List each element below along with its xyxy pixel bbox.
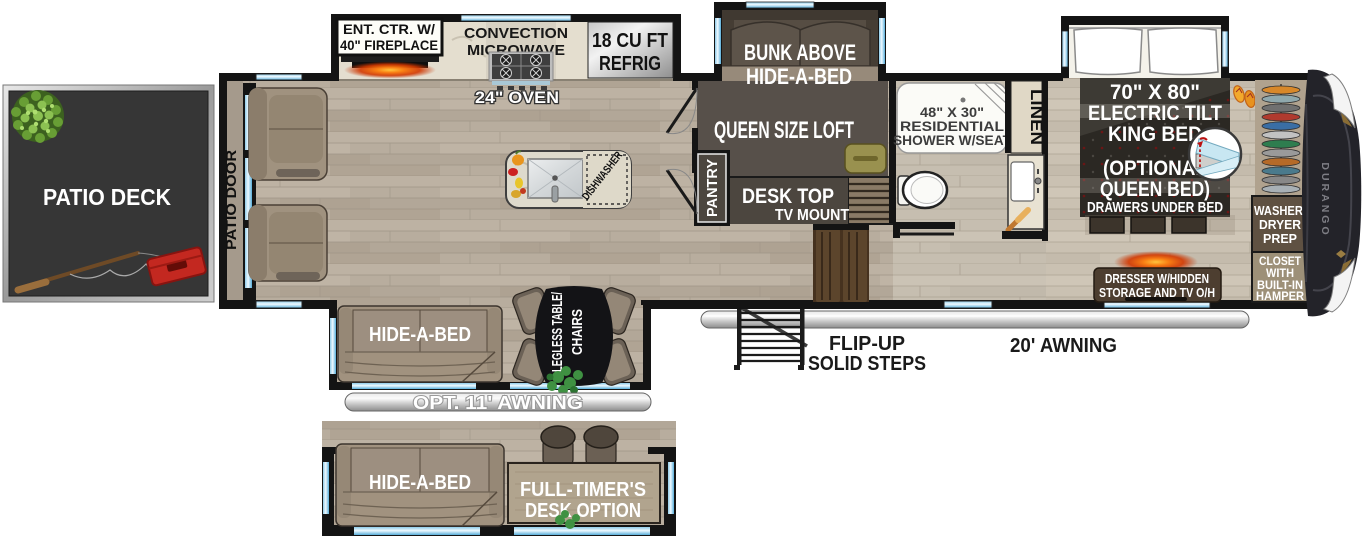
svg-text:FLIP-UP: FLIP-UP (829, 333, 905, 355)
svg-text:PANTRY: PANTRY (704, 159, 721, 217)
svg-text:CHAIRS: CHAIRS (569, 309, 586, 355)
svg-text:RESIDENTIAL: RESIDENTIAL (900, 119, 1004, 134)
svg-text:HIDE-A-BED: HIDE-A-BED (369, 324, 471, 346)
svg-text:DURANGO: DURANGO (1319, 162, 1331, 237)
svg-text:BUNK ABOVE: BUNK ABOVE (744, 40, 856, 65)
svg-text:KING BED: KING BED (1108, 123, 1202, 146)
svg-text:70" X 80": 70" X 80" (1110, 81, 1200, 104)
svg-text:HIDE-A-BED: HIDE-A-BED (369, 472, 471, 494)
svg-text:DRYER: DRYER (1259, 217, 1302, 232)
svg-text:QUEEN SIZE LOFT: QUEEN SIZE LOFT (714, 117, 854, 144)
svg-text:PATIO DOOR: PATIO DOOR (223, 150, 240, 250)
svg-text:OPT. 11' AWNING: OPT. 11' AWNING (413, 393, 583, 413)
svg-text:DRESSER W/HIDDEN: DRESSER W/HIDDEN (1105, 271, 1209, 286)
svg-text:SOLID STEPS: SOLID STEPS (808, 353, 926, 375)
svg-text:WITH: WITH (1266, 268, 1294, 280)
svg-text:WASHER/: WASHER/ (1254, 203, 1306, 218)
svg-text:HIDE-A-BED: HIDE-A-BED (746, 64, 852, 89)
svg-text:CLOSET: CLOSET (1259, 256, 1301, 268)
svg-text:PREP: PREP (1263, 231, 1297, 246)
svg-text:ENT. CTR. W/: ENT. CTR. W/ (343, 21, 435, 37)
svg-text:SHOWER W/SEAT: SHOWER W/SEAT (893, 133, 1012, 148)
svg-text:LEGLESS TABLE/: LEGLESS TABLE/ (549, 291, 566, 372)
svg-text:ELECTRIC TILT: ELECTRIC TILT (1088, 102, 1222, 125)
svg-text:18 CU FT: 18 CU FT (592, 30, 668, 52)
svg-text:CONVECTION: CONVECTION (464, 25, 568, 42)
svg-text:DESK OPTION: DESK OPTION (525, 500, 641, 522)
svg-text:40" FIREPLACE: 40" FIREPLACE (340, 37, 438, 53)
svg-text:FULL-TIMER'S: FULL-TIMER'S (520, 479, 646, 501)
svg-text:HAMPER: HAMPER (1256, 291, 1305, 303)
svg-text:DRAWERS UNDER BED: DRAWERS UNDER BED (1087, 199, 1223, 216)
svg-text:24" OVEN: 24" OVEN (475, 88, 559, 107)
svg-text:PATIO DECK: PATIO DECK (43, 184, 171, 210)
svg-text:48" X 30": 48" X 30" (920, 105, 984, 120)
svg-text:TV MOUNT: TV MOUNT (775, 207, 849, 224)
svg-text:DESK TOP: DESK TOP (742, 185, 834, 208)
svg-text:QUEEN BED): QUEEN BED) (1100, 178, 1210, 201)
svg-text:REFRIG: REFRIG (599, 53, 661, 75)
svg-text:20' AWNING: 20' AWNING (1010, 335, 1117, 357)
